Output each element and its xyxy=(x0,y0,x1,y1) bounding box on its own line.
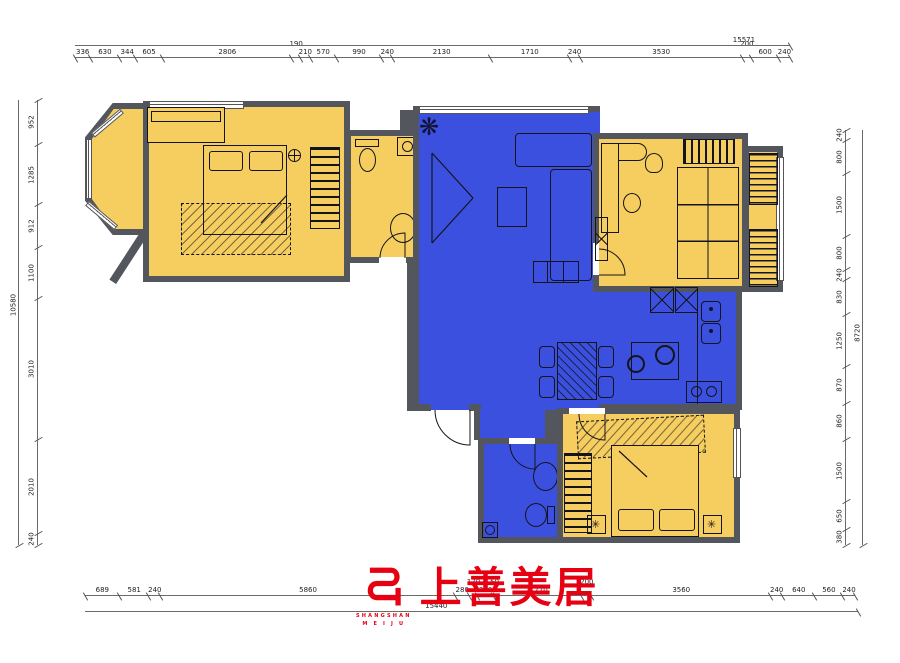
dimension-total-label: 8720 xyxy=(855,324,862,342)
bedroom-chamfer-wall xyxy=(109,231,147,284)
dining-chair xyxy=(598,346,614,368)
lamp-icon: ✳ xyxy=(591,519,600,530)
wardrobe-bedroom2 xyxy=(564,453,592,533)
dimension-label: 3560 xyxy=(672,587,690,594)
dimension-label: 240 xyxy=(837,128,844,141)
dimension-label: 990 xyxy=(352,49,365,56)
corridor xyxy=(474,410,545,440)
bookshelf xyxy=(595,217,608,261)
radiator xyxy=(749,229,778,287)
dresser-drawer xyxy=(151,111,221,122)
dining-chair xyxy=(539,346,555,368)
dimension-chain-right: 240800150080024083012508708601500650380 xyxy=(845,130,846,545)
wash-basin-2 xyxy=(533,462,558,491)
toilet-bowl xyxy=(359,148,376,172)
washing-machine-drum xyxy=(402,141,413,152)
dimension-label: 3010 xyxy=(29,360,36,378)
wardrobe-master xyxy=(310,147,340,229)
dimension-label: 860 xyxy=(837,414,844,427)
dimension-label: 5860 xyxy=(299,587,317,594)
dining-chair xyxy=(539,376,555,398)
dimension-label: 210 xyxy=(299,49,312,56)
logo-chinese-text: 上善美居 xyxy=(420,565,600,611)
bedroom2-door-gap xyxy=(569,408,605,414)
dimension-label: 240 xyxy=(842,587,855,594)
plant-icon: ❋ xyxy=(419,115,439,139)
dimension-label: 640 xyxy=(792,587,805,594)
bathroom2-door-gap xyxy=(509,438,535,444)
toilet-tank-2 xyxy=(547,506,555,524)
dimension-label: 650 xyxy=(837,509,844,522)
dimension-label: 581 xyxy=(128,587,141,594)
floor-drain-circle xyxy=(485,525,495,535)
toilet-tank xyxy=(355,139,379,147)
ceiling-lamp-icon xyxy=(288,149,301,162)
logo-mark: SHANGSHAN M E I J U xyxy=(356,565,412,628)
dimension-label: 240 xyxy=(837,268,844,281)
dimension-label: 830 xyxy=(837,290,844,303)
dimension-total-top: 15571 xyxy=(75,45,790,46)
pillow xyxy=(209,151,243,171)
pillow xyxy=(618,509,654,531)
dimension-label: 952 xyxy=(29,116,36,129)
pillow xyxy=(659,509,695,531)
dimension-total-right: 8720 xyxy=(862,130,863,545)
coffee-table xyxy=(497,187,527,227)
tatami-platform xyxy=(677,167,739,279)
bar-stool xyxy=(627,355,645,373)
stove-burner xyxy=(706,386,717,397)
dimension-label: 1250 xyxy=(837,332,844,350)
logo-latin-line2: M E I J U xyxy=(356,621,412,629)
bar-stool xyxy=(655,345,675,365)
dimension-label: 380 xyxy=(837,530,844,543)
dimension-label: 605 xyxy=(142,49,155,56)
wardrobe-study xyxy=(683,139,735,164)
dimension-label: 1285 xyxy=(29,166,36,184)
dimension-label: 1710 xyxy=(521,49,539,56)
dimension-label: 240 xyxy=(29,533,36,546)
kitchen-sink xyxy=(701,323,721,344)
living-bottom-wall xyxy=(407,404,431,411)
dimension-label: 1500 xyxy=(837,462,844,480)
bay-window-glass-left xyxy=(86,139,92,199)
shoe-cabinet-divider xyxy=(547,262,548,282)
living-window xyxy=(419,106,589,114)
kitchen-cabinet xyxy=(675,287,698,313)
dimension-label: 240 xyxy=(381,49,394,56)
radiator xyxy=(749,153,778,205)
shoe-cabinet-divider xyxy=(563,262,564,282)
corridor-right-wall xyxy=(545,410,557,440)
desk-chair xyxy=(623,193,641,213)
sofa-chaise xyxy=(515,133,592,167)
floorplan-canvas: 3366303446052806190210570990240213017102… xyxy=(0,0,900,663)
kitchen-sink xyxy=(701,301,721,322)
living-left-lower-wall xyxy=(407,257,414,411)
dimension-label: 560 xyxy=(822,587,835,594)
brand-logo: SHANGSHAN M E I J U 上善美居 xyxy=(356,565,600,628)
dimension-total-label: 15571 xyxy=(733,37,755,44)
shoe-cabinet xyxy=(533,261,579,283)
dimension-chain-top: 3366303446052806190210570990240213017102… xyxy=(75,57,790,58)
dimension-label: 870 xyxy=(837,378,844,391)
dimension-label: 689 xyxy=(96,587,109,594)
floor-plan: ❋ xyxy=(85,95,785,550)
stove-burner xyxy=(691,386,702,397)
dimension-label: 600 xyxy=(758,49,771,56)
dimension-label: 800 xyxy=(837,246,844,259)
dimension-label: 240 xyxy=(778,49,791,56)
rug-master xyxy=(181,203,291,255)
logo-latin-line1: SHANGSHAN xyxy=(356,613,412,621)
dimension-total-left: 10580 xyxy=(18,100,19,545)
lamp-icon: ✳ xyxy=(707,519,716,530)
dimension-label: 800 xyxy=(837,150,844,163)
toilet-bowl-2 xyxy=(525,503,547,527)
bedroom2-window xyxy=(733,428,741,478)
sink-faucet-dot xyxy=(709,307,713,311)
pillow xyxy=(249,151,283,171)
dimension-total-label: 10580 xyxy=(11,294,18,316)
dimension-label: 912 xyxy=(29,219,36,232)
dimension-label: 2130 xyxy=(433,49,451,56)
desk-chair xyxy=(645,153,663,173)
refrigerator xyxy=(650,287,674,313)
bathroom1-door-gap xyxy=(379,257,406,263)
dimension-label: 2010 xyxy=(29,478,36,496)
logo-mark-icon xyxy=(357,565,411,609)
dimension-label: 1500 xyxy=(837,196,844,214)
sink-faucet-dot xyxy=(709,329,713,333)
dimension-chain-left: 9521285912110030102010240 xyxy=(37,100,38,545)
dimension-label: 570 xyxy=(317,49,330,56)
dimension-label: 630 xyxy=(98,49,111,56)
dimension-label: 1100 xyxy=(29,264,36,282)
dining-chair xyxy=(598,376,614,398)
dimension-label: 3530 xyxy=(652,49,670,56)
dimension-label: 2806 xyxy=(218,49,236,56)
dining-table xyxy=(557,342,597,400)
